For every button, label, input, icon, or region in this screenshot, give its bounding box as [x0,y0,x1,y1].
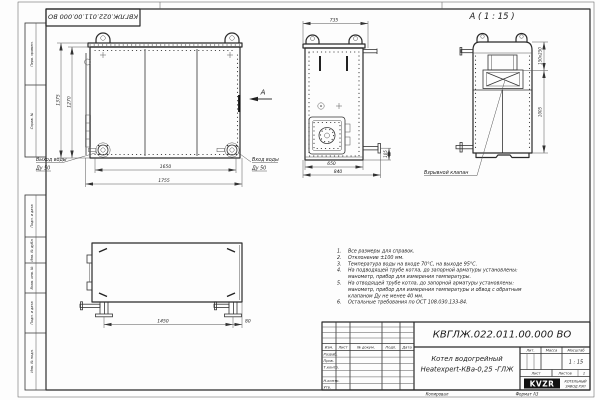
tb-header-podp: Подп. [386,346,397,350]
dim-side-width-outer: 840 [334,169,343,175]
tb-header-docnum: № докум. [356,346,375,350]
dim-bottom-length: 1450 [157,319,169,325]
dim-bottom-offset: 80 [245,319,251,325]
tb-header-lit: Лит. [525,349,534,353]
front-view-dimensions: 1375 1270 1650 1755 [56,43,243,187]
water-inlet-label: Вход воды [252,157,279,163]
corner-stamp-doc-number: КВГЛЖ.022.011.00.000 ВО [48,13,138,21]
stamp-perv-primen: Перв. примен. [30,41,34,66]
dim-rear-height: 1005 [538,106,543,117]
note-num: 3. [337,261,342,267]
dim-side-width-inner: 650 [327,161,336,167]
front-view [85,33,243,158]
water-outlet-label: Выход воды [36,157,67,163]
view-a-title: А ( 1 : 15 ) [468,12,514,22]
tb-header-data: Дата [401,346,411,350]
bottom-view [80,243,242,317]
dim-front-height-inner: 1270 [67,96,73,108]
rear-view: А ( 1 : 15 ) [456,12,532,158]
note-num: 1. [337,249,342,255]
explosion-valve-label: Взрывной клапан [424,170,468,176]
dim-side-top: 735 [330,18,339,24]
technical-notes: 1. Все размеры для справок. 2. Отклонени… [337,249,522,306]
tb-header-izm: Изм. [325,346,333,350]
water-outlet-dn: Ду 50 [35,166,50,172]
technical-drawing-canvas: Перв. примен. Справ. № Подп. и дата Инв.… [0,0,600,400]
note-num: 2. [337,255,342,261]
tb-row-utv: Утв. [324,385,332,389]
water-inlet-dn: Ду 50 [251,166,266,172]
kvzr-logo-text: KVZR [530,380,555,389]
tb-row-nkontr: Н.контр. [324,379,340,383]
margin-stamps: Перв. примен. Справ. № Подп. и дата Инв.… [25,23,46,390]
note-line: манометр, прибор для измерения температу… [348,274,471,280]
note-num: 6. [337,300,342,306]
corner-stamp: КВГЛЖ.022.011.00.000 ВО [46,9,140,26]
tb-doc-number: КВГЛЖ.022.011.00.000 ВО [433,330,572,341]
bottom-margin-labels: Копировал Формат А3 [426,392,539,397]
stamp-inv-podl: Инв. № подл. [30,349,34,372]
tb-row-razrab: Разраб. [324,353,338,357]
dim-front-width-inner: 1650 [160,164,172,170]
kvzr-logo-caption-2: ЗАВОД РЭП [565,385,586,389]
note-line: Остальные требования по ОСТ 108.030.133-… [348,300,468,306]
tb-listov-label: Листов [557,372,571,376]
tb-header-massa: Масса [546,349,557,353]
title-block: Изм. Лист № докум. Подп. Дата Разраб. Пр… [322,322,590,390]
note-line: клапаном Ду не менее 40 мм. [348,293,423,299]
kvzr-logo-caption-1: КОТЕЛЬНЫЙ [564,379,586,384]
dim-rear-valve-size: 150x250 [538,47,543,65]
stamp-podp-data-1: Подп. и дата [30,204,34,227]
format-label: Формат А3 [516,392,539,397]
note-num: 4. [337,268,342,274]
tb-header-masshtab: Масштаб [567,349,585,353]
note-line: манометр, прибор для измерения температу… [348,287,522,293]
dim-side-pipe-height: 105 [383,150,388,158]
view-direction-arrow-label: А [260,89,266,97]
stamp-podp-data-2: Подп. и дата [30,301,34,324]
rear-view-dimensions: 150x250 1005 [523,42,548,153]
tb-header-list: Лист [337,346,348,350]
tb-list-label: Лист [530,372,541,376]
view-direction-arrow: А [249,89,272,102]
tb-scale-value: 1 : 15 [569,360,583,366]
note-line: На подводящей трубе котла, до запорной а… [348,268,518,274]
stamp-sprav-no: Справ. № [30,112,34,129]
note-line: На отводящей трубе котла, до запорной ар… [348,281,514,287]
tb-row-prov: Пров. [324,359,334,363]
stamp-inv-dubl: Инв. № дубл. [30,238,34,261]
note-line: Отклонение ±100 мм. [348,255,404,261]
stamp-vzam-inv: Взам. инв. № [30,266,34,289]
note-line: Все размеры для справок. [348,249,415,255]
tb-listov-value: 1 [583,372,585,376]
tb-product-name-1: Котел водогрейный [431,355,503,363]
drawing-sheet: Перв. примен. Справ. № Подп. и дата Инв.… [0,0,600,400]
dim-front-width-outer: 1755 [158,178,170,184]
rear-view-label: Взрывной клапан [424,80,505,176]
note-line: Температура воды на входе 70°С, на выход… [348,261,477,267]
note-num: 5. [337,281,342,287]
dim-front-height-outer: 1375 [56,94,62,106]
tb-product-name-2: Heatexpert-КВа-0,25 -ГЛЖ [421,366,514,374]
tb-row-tkontr: Т.контр. [324,366,340,370]
kopiroval-label: Копировал [426,392,449,397]
side-view [303,35,381,160]
